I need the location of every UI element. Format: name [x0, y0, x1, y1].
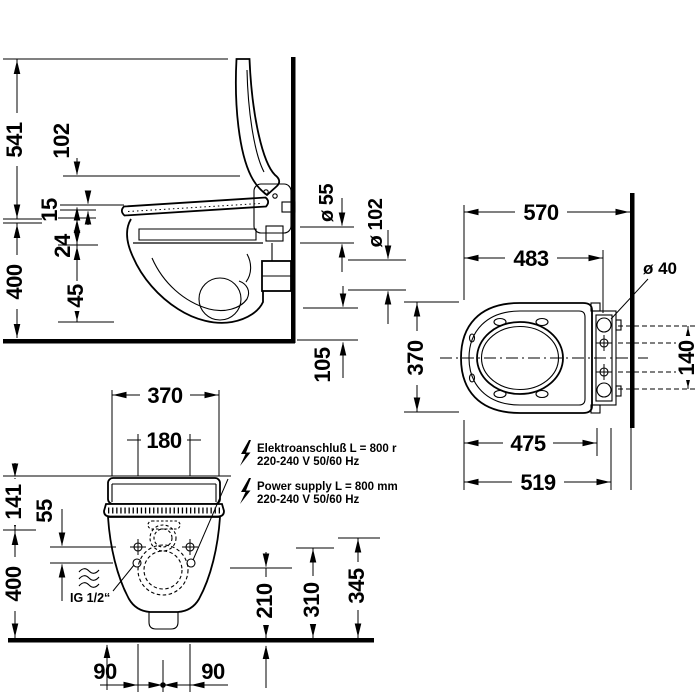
dim-400-side: 400 [2, 223, 30, 338]
hidden-slot [148, 521, 180, 529]
bowl-outline-side [127, 219, 263, 323]
dim-570-label: 570 [523, 200, 558, 225]
dim-55-front-label: 55 [32, 499, 57, 523]
hidden-circle-lower [138, 545, 188, 595]
dim-90-right-label: 90 [201, 659, 225, 684]
toilet-installation-diagram: 541 400 102 15 [0, 0, 700, 700]
hidden-circle-upper-inner [154, 529, 172, 547]
fixing-cross [182, 539, 198, 555]
dim-15: 15 [37, 191, 124, 225]
plate-tab [616, 320, 621, 330]
floor-section [3, 339, 295, 344]
fixing-cross [130, 539, 146, 555]
dim-210-label: 210 [252, 583, 277, 618]
lightning-icon [240, 440, 251, 466]
seat-slot [536, 319, 548, 326]
seat-band-front [104, 504, 224, 517]
fixing-hole [597, 383, 611, 397]
front-view: IG 1/2“ Elektroanschluß L = 800 r 220-24… [1, 383, 398, 692]
dim-400-front: 400 [1, 530, 28, 638]
power-annotation: Elektroanschluß L = 800 r 220-240 V 50/6… [193, 440, 398, 560]
dim-140-label: 140 [674, 340, 699, 375]
dim-45-label: 45 [63, 284, 88, 308]
rim-inner-box [139, 229, 256, 240]
water-inlet-annotation: IG 1/2“ [70, 565, 134, 605]
bolt-cross [596, 335, 612, 351]
technical-drawing-page: 541 400 102 15 [0, 0, 700, 700]
bolt-cross [596, 364, 612, 380]
dim-55-front: 55 [32, 499, 116, 601]
dim-370-front-label: 370 [147, 383, 182, 408]
dim-483-label: 483 [513, 246, 548, 271]
dim-345: 345 [338, 538, 380, 638]
power-label-line2: 220-240 V 50/60 Hz [257, 494, 360, 506]
dim-541-label: 541 [2, 122, 27, 157]
trap-curve [152, 258, 249, 311]
dim-140: 140 [674, 326, 700, 389]
dim-105: 105 [297, 286, 358, 383]
lightning-icon [240, 478, 251, 504]
wall-section-top [630, 193, 635, 428]
unit-control-button [273, 194, 277, 198]
dim-141-label: 141 [1, 484, 26, 519]
dim-24: 24 [50, 218, 98, 258]
dim-90-left-label: 90 [93, 659, 117, 684]
power-entry-point [187, 559, 195, 567]
dim-400-side-label: 400 [2, 264, 27, 299]
inlet-label: IG 1/2“ [70, 591, 110, 605]
hidden-circle-lower-inner [144, 551, 182, 589]
dim-dia-40: ø 40 [611, 259, 677, 319]
body-front [108, 517, 220, 612]
leader-line [611, 279, 648, 319]
dim-370-top-label: 370 [403, 340, 428, 375]
floor-front [8, 638, 374, 643]
dim-519-label: 519 [520, 470, 555, 495]
dim-dia-55: ø 55 [300, 184, 354, 272]
dim-105-label: 105 [310, 347, 335, 382]
dim-475-label: 475 [510, 431, 545, 456]
dim-541: 541 [2, 60, 42, 224]
water-inlet-point [133, 559, 141, 567]
water-squiggle-icon [79, 569, 99, 588]
plate-tab [616, 386, 621, 396]
seat-slot [494, 319, 506, 326]
dia-102-label: ø 102 [365, 198, 387, 247]
top-view: 570 483 370 ø 40 [403, 193, 700, 495]
dim-180-label: 180 [146, 428, 181, 453]
drain-front [149, 612, 178, 629]
seat-slot [536, 391, 548, 398]
electro-label-line2: 220-240 V 50/60 Hz [257, 456, 360, 468]
dia-40-label: ø 40 [643, 259, 677, 278]
dim-345-label: 345 [344, 568, 369, 603]
dim-180: 180 [127, 428, 201, 476]
toilet-lid-open [236, 59, 279, 195]
connection-dimensions: ø 55 ø 102 105 [297, 184, 406, 383]
wall-section [291, 57, 296, 343]
fixing-hole [597, 318, 611, 332]
power-label-line1: Power supply L = 800 mm [257, 481, 398, 493]
dim-90-90: 90 90 [93, 644, 228, 692]
dia-55-label: ø 55 [316, 184, 338, 222]
dim-dia-102: ø 102 [348, 198, 406, 324]
lid-front [108, 478, 220, 504]
trap-curve-2 [246, 254, 251, 282]
side-view: 541 400 102 15 [2, 57, 296, 344]
dim-210: 210 [230, 552, 292, 688]
dim-102-side-label: 102 [49, 123, 74, 158]
dim-370-top: 370 [403, 302, 459, 412]
dim-310: 310 [296, 548, 334, 638]
dim-310-label: 310 [299, 582, 324, 617]
water-pocket [199, 278, 241, 320]
toilet-seat-side [122, 198, 268, 216]
seat-slot [494, 391, 506, 398]
electro-label-line1: Elektroanschluß L = 800 r [257, 443, 397, 455]
dim-400-front-label: 400 [1, 566, 26, 601]
dim-141: 141 [1, 463, 36, 530]
